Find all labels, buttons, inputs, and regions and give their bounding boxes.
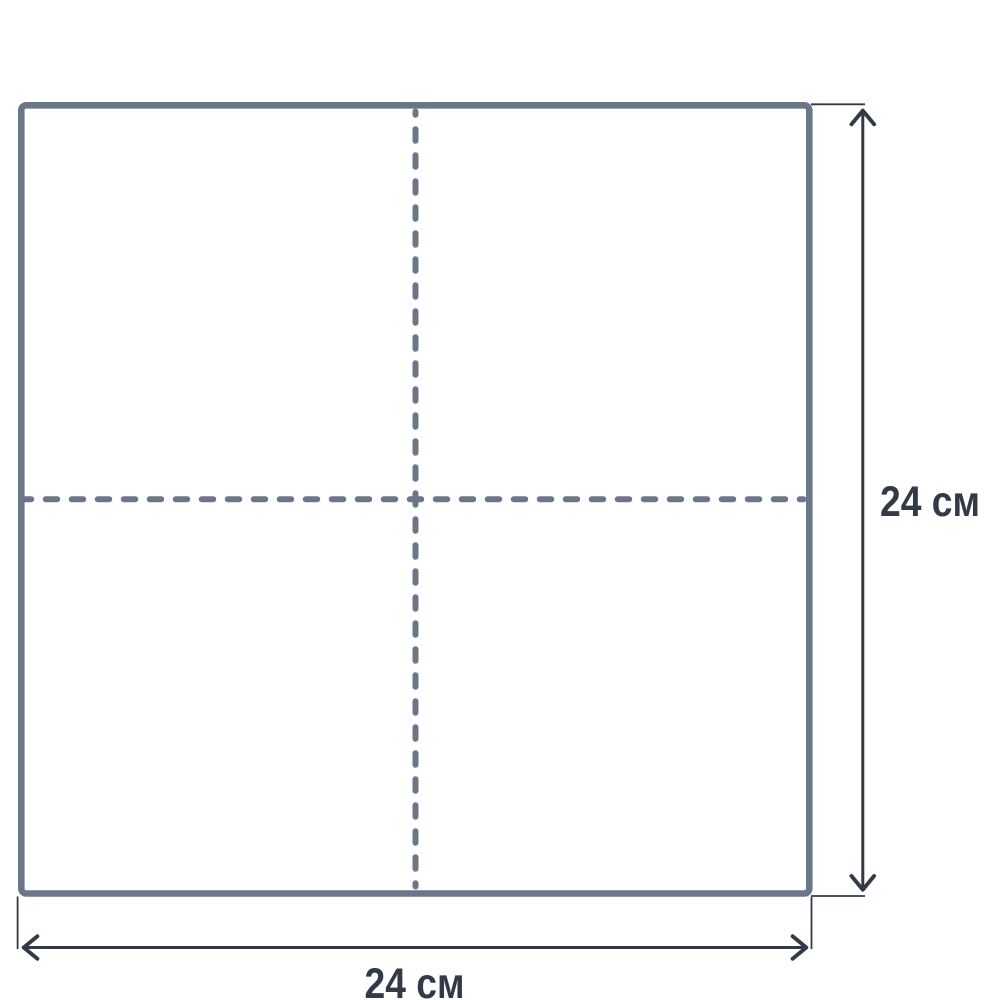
svg-text:24 см: 24 см: [365, 960, 465, 1000]
svg-text:24 см: 24 см: [880, 478, 980, 526]
